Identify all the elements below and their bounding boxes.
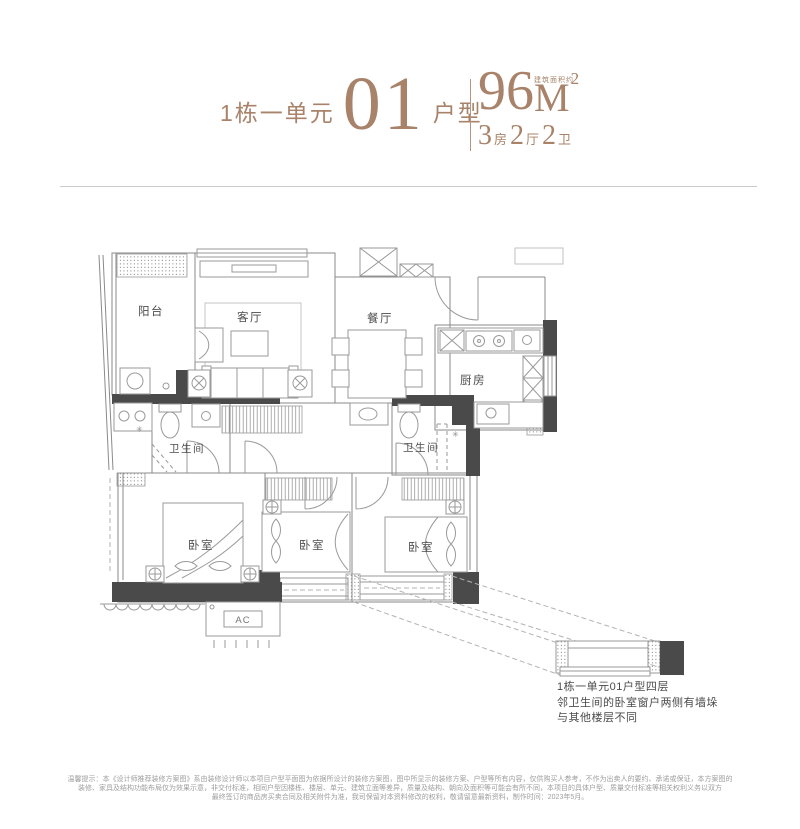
laundry-counter [114, 403, 152, 431]
bedroom-left-door [245, 441, 277, 473]
wardrobe-right [402, 478, 464, 500]
kitchen-window [544, 356, 556, 396]
label-bedroom-mid: 卧室 [299, 538, 325, 552]
label-dining: 餐厅 [367, 311, 393, 325]
label-bedroom-right: 卧室 [408, 540, 434, 554]
label-bath-right: 卫生间 [403, 441, 439, 454]
lamp-icon [149, 568, 161, 580]
toilet-bowl [161, 412, 179, 438]
label-ac: AC [235, 615, 250, 626]
vanity-counter [350, 403, 388, 425]
disclaimer-line2: 装修、家具及结构功能布局仅为效果示意，非交付标准，相同户型因楼栋、楼层、单元、建… [20, 784, 780, 793]
shower-head-icon: ✳ [452, 430, 459, 439]
entry-door [435, 277, 478, 320]
tv [232, 265, 276, 272]
kitchen-sink [514, 330, 540, 351]
toilet-tank [398, 404, 420, 412]
detail-note-line3: 与其他楼层不同 [557, 711, 718, 727]
disclaimer: 温馨提示：本《设计师推荐装修方案图》系由装修设计师以本项目户型平面图为依据所设计… [20, 775, 780, 802]
detail-note-line1: 1栋一单元01户型四层 [557, 680, 718, 696]
basin [192, 404, 220, 427]
detail-note-line2: 邻卫生间的卧室窗户两侧有墙垛 [557, 696, 718, 712]
floorplan-page: 1栋一单元 01 户型 建筑面积约 96 M 2 3 房 2 厅 2 卫 [0, 0, 800, 829]
label-bath-left: 卫生间 [169, 442, 205, 455]
hall-cabinet [222, 406, 302, 433]
window-detail-inset [556, 641, 684, 676]
bath-left-items [152, 404, 220, 472]
bedroom-right-door [356, 477, 388, 509]
toilet-bowl [400, 412, 418, 438]
disclaimer-line1: 温馨提示：本《设计师推荐装修方案图》系由装修设计师以本项目户型平面图为依据所设计… [20, 775, 780, 784]
lamp-icon [449, 501, 461, 513]
coffee-table [231, 331, 268, 356]
living-furniture [188, 261, 312, 398]
shower-head-icon: ✳ [136, 425, 143, 434]
label-balcony: 阳台 [138, 304, 164, 318]
bath-right-items [398, 404, 447, 471]
wardrobe-mid [266, 478, 332, 500]
sofa [211, 368, 289, 398]
label-kitchen: 厨房 [460, 374, 486, 387]
stove [466, 331, 512, 351]
washing-machine [120, 368, 150, 394]
label-bedroom-left: 卧室 [188, 538, 214, 552]
label-living: 客厅 [237, 310, 263, 324]
lamp-icon [266, 501, 278, 513]
dining-table [348, 330, 406, 398]
disclaimer-line3: 最终签订的商品房买卖合同及相关附件为准，我司保留对本资料修改的权利，敬请留意最新… [20, 793, 780, 802]
lamp-icon [244, 568, 256, 580]
detail-note: 1栋一单元01户型四层 邻卫生间的卧室窗户两侧有墙垛 与其他楼层不同 [557, 680, 718, 727]
ac-platform [100, 602, 280, 648]
toilet-tank [159, 404, 181, 412]
